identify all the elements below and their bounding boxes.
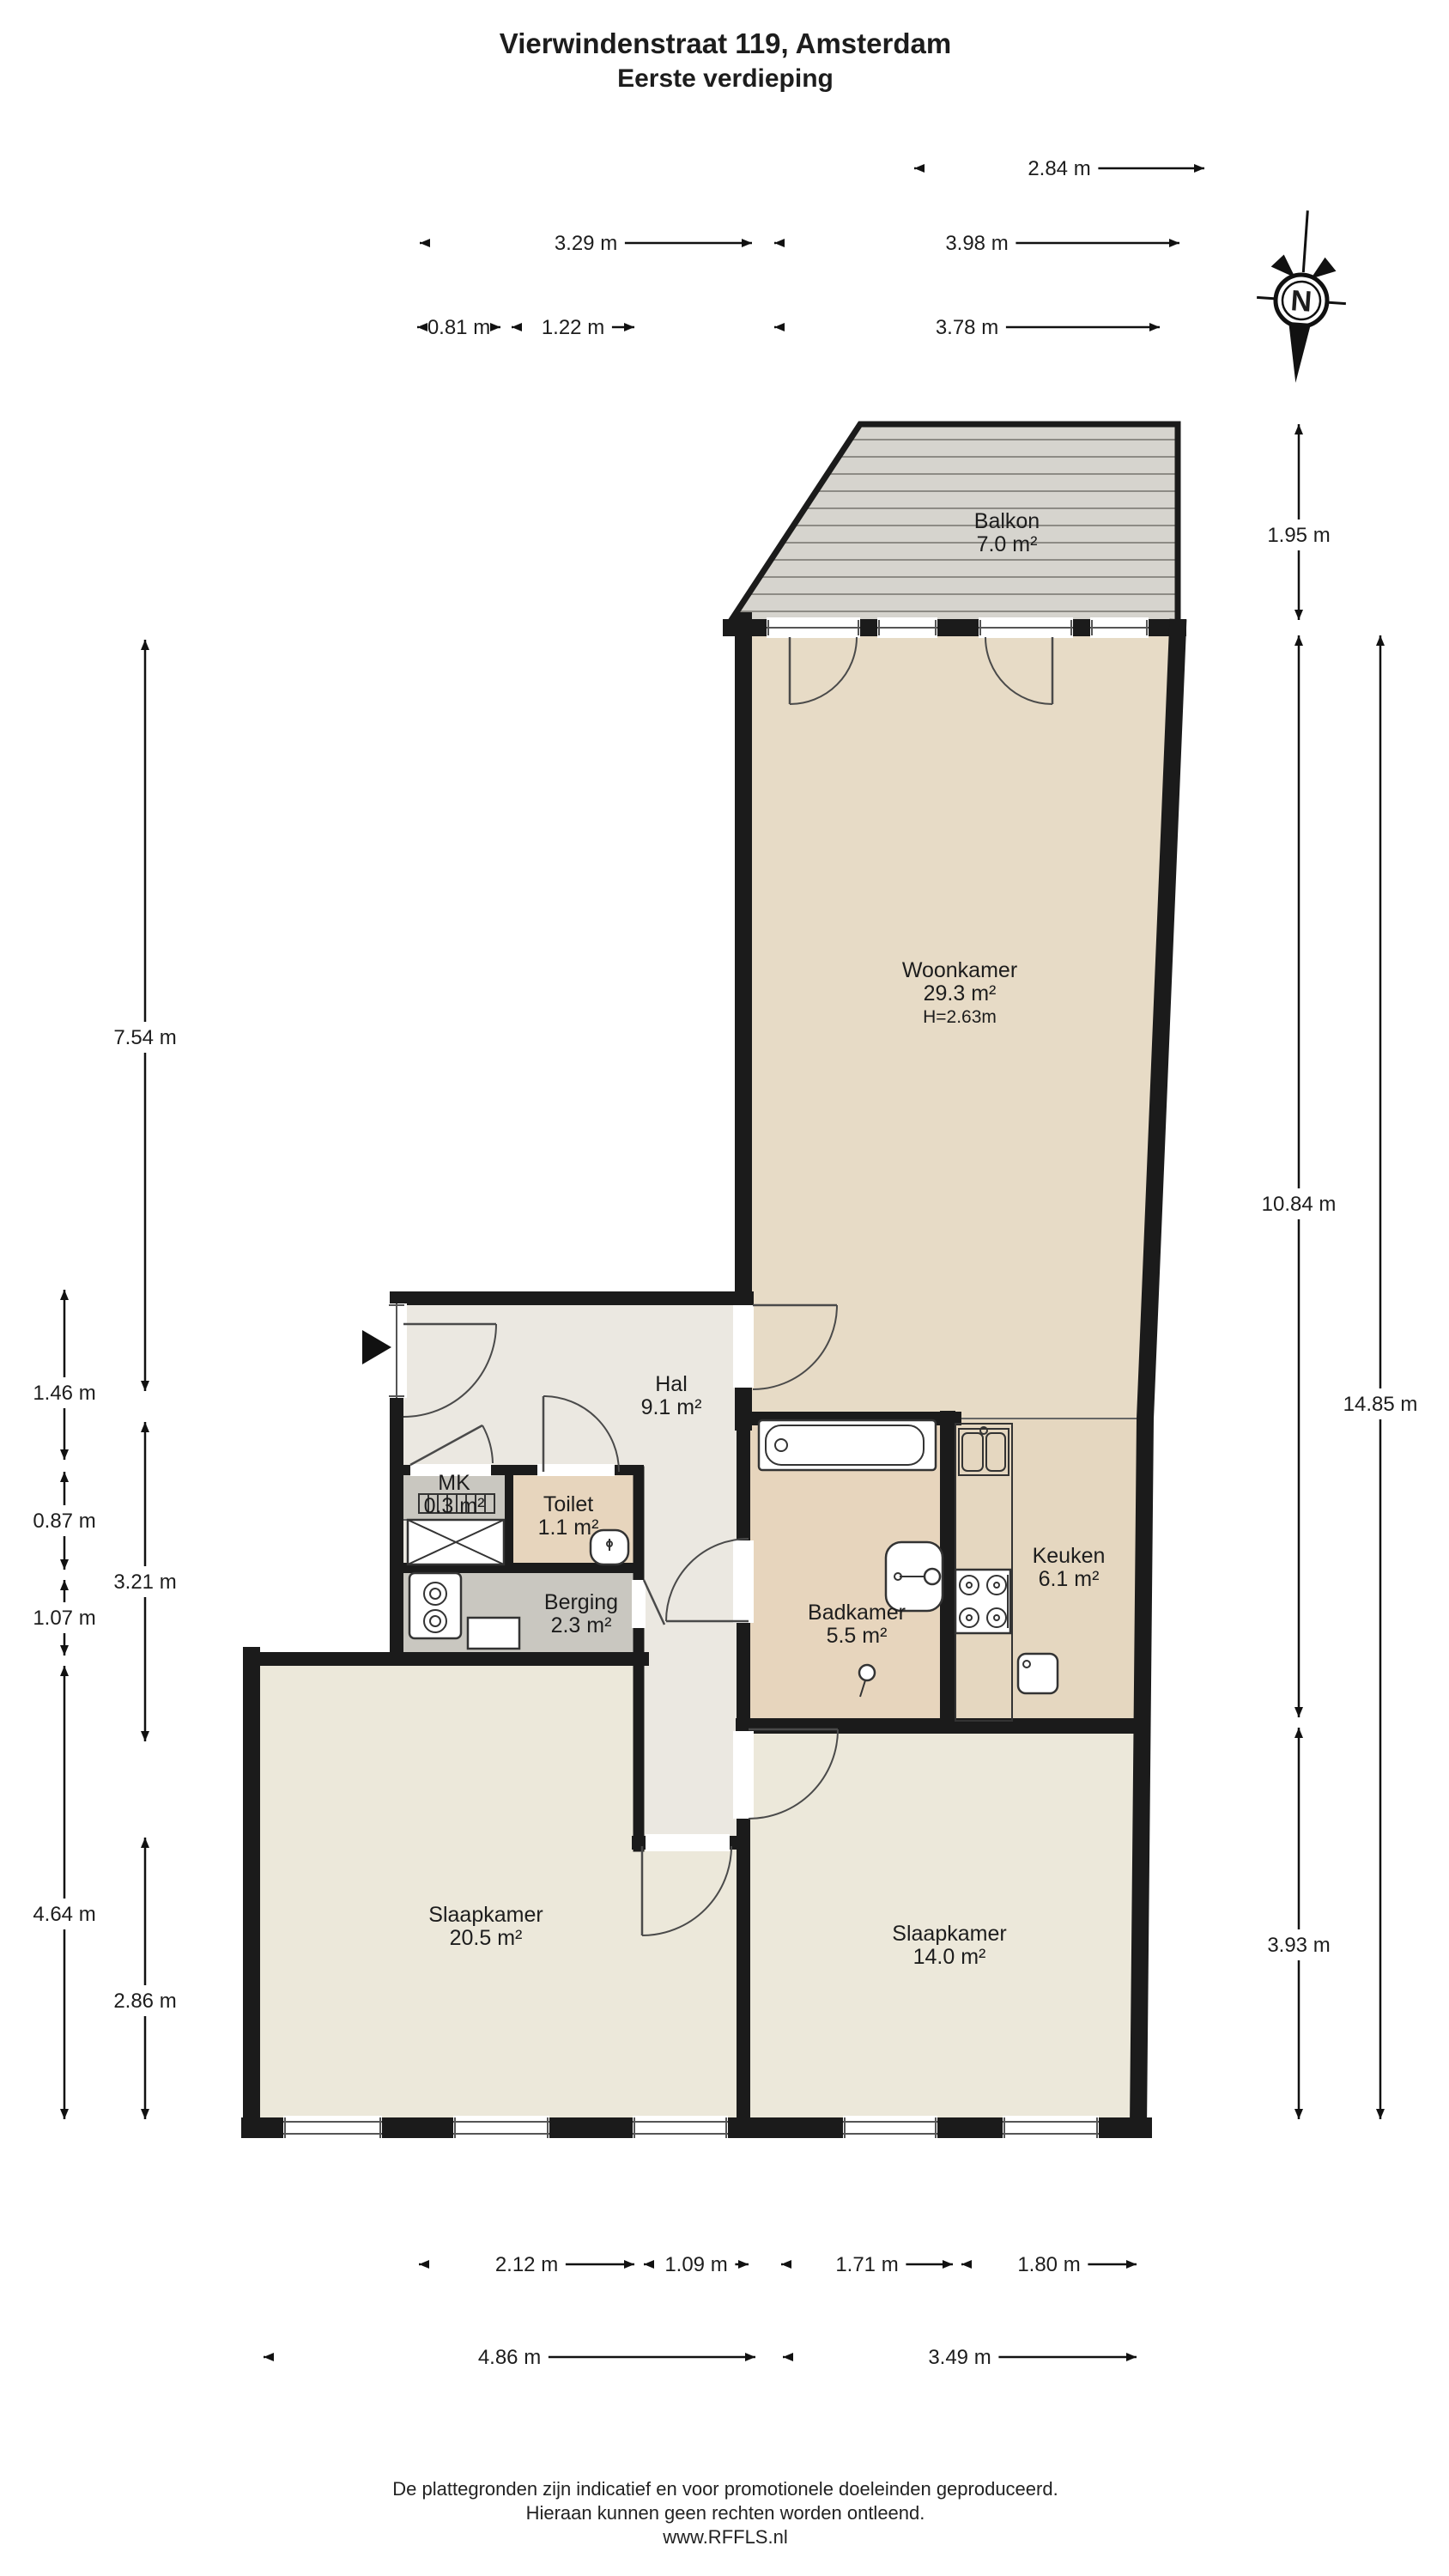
title-line2: Eerste verdieping: [617, 64, 834, 93]
dimension-label: 1.22 m: [542, 316, 604, 339]
dimension-label: 4.64 m: [33, 1903, 95, 1926]
floorplan-svg: Vierwindenstraat 119, Amsterdam Eerste v…: [0, 0, 1449, 2576]
room-area-label: 9.1 m²: [641, 1395, 702, 1419]
dimension-label: 1.80 m: [1017, 2253, 1080, 2276]
room-name-label: MK: [438, 1471, 470, 1495]
room-note-label: H=2.63m: [923, 1007, 997, 1027]
dimension-label: 1.95 m: [1267, 524, 1330, 547]
rooms-layer: [252, 424, 1185, 2129]
room-name-label: Balkon: [974, 509, 1040, 533]
dimension-label: 3.29 m: [555, 232, 617, 255]
dimension-label: 3.49 m: [928, 2346, 991, 2369]
bathroom-door-opening: [733, 1540, 754, 1623]
room-area-label: 5.5 m²: [827, 1624, 888, 1648]
room-name-label: Slaapkamer: [428, 1903, 543, 1927]
room-name-label: Toilet: [543, 1492, 593, 1516]
room-area-label: 29.3 m²: [924, 981, 997, 1005]
window-bottom-4: [843, 2116, 937, 2140]
dimension-label: 1.71 m: [835, 2253, 898, 2276]
compass: N: [1251, 208, 1352, 386]
storage-door-opening: [632, 1580, 646, 1628]
meter-cupboard: [408, 1520, 504, 1564]
dimension-label: 7.54 m: [113, 1026, 176, 1049]
window-bottom-3: [633, 2116, 728, 2140]
dimension-label: 10.84 m: [1262, 1193, 1337, 1216]
room-name-label: Hal: [655, 1372, 688, 1396]
washing-machine: [409, 1573, 461, 1638]
room-name-label: Slaapkamer: [892, 1922, 1006, 1946]
dimension-label: 3.93 m: [1267, 1934, 1330, 1957]
title-line1: Vierwindenstraat 119, Amsterdam: [500, 27, 951, 59]
toilet-door-opening: [537, 1464, 615, 1476]
stove: [955, 1570, 1010, 1633]
footer-line2: Hieraan kunnen geen rechten worden ontle…: [526, 2502, 925, 2524]
bedroom2-door-opening: [733, 1731, 754, 1819]
storage-cabinet: [468, 1618, 519, 1649]
room-name-label: Badkamer: [808, 1601, 906, 1625]
room-name-label: Keuken: [1033, 1544, 1106, 1568]
compass-north-label: N: [1289, 284, 1313, 319]
dimension-label: 0.81 m: [427, 316, 490, 339]
room-name-label: Berging: [544, 1590, 618, 1614]
dimension-label: 3.98 m: [945, 232, 1008, 255]
room-area-label: 2.3 m²: [551, 1613, 612, 1637]
dimension-label: 1.46 m: [33, 1382, 95, 1405]
window-bottom-5: [1003, 2116, 1099, 2140]
footer-line1: De plattegronden zijn indicatief en voor…: [392, 2478, 1058, 2500]
compass-south-needle: [1284, 322, 1311, 384]
dimension-label: 1.07 m: [33, 1607, 95, 1630]
bathtub: [759, 1420, 936, 1470]
dimension-label: 1.09 m: [664, 2253, 727, 2276]
room-area-label: 20.5 m²: [450, 1926, 523, 1950]
dimension-label: 0.87 m: [33, 1510, 95, 1533]
room-area-label: 14.0 m²: [913, 1945, 986, 1969]
dimension-label: 14.85 m: [1343, 1393, 1418, 1416]
footer-disclaimer: De plattegronden zijn indicatief en voor…: [392, 2478, 1058, 2548]
window-bottom-2: [453, 2116, 549, 2140]
page-title: Vierwindenstraat 119, Amsterdam Eerste v…: [500, 27, 951, 93]
living-door-opening: [733, 1305, 754, 1388]
room-area-label: 1.1 m²: [538, 1516, 599, 1540]
room-area-label: 7.0 m²: [977, 532, 1038, 556]
room-area-label: 6.1 m²: [1039, 1567, 1100, 1591]
dimension-label: 2.84 m: [1028, 157, 1090, 180]
window-bottom-1: [283, 2116, 382, 2140]
footer-line3: www.RFFLS.nl: [662, 2526, 787, 2548]
bedroom1-door-opening: [646, 1834, 730, 1851]
dimension-label: 3.21 m: [113, 1571, 176, 1594]
room-area-label: 0.3 m²: [424, 1494, 485, 1518]
dimension-label: 4.86 m: [478, 2346, 541, 2369]
dimension-label: 2.86 m: [113, 1990, 176, 2013]
dimension-label: 3.78 m: [936, 316, 998, 339]
kitchen-sink-small: [1018, 1654, 1058, 1693]
room-name-label: Woonkamer: [902, 958, 1017, 982]
dimension-label: 2.12 m: [495, 2253, 558, 2276]
